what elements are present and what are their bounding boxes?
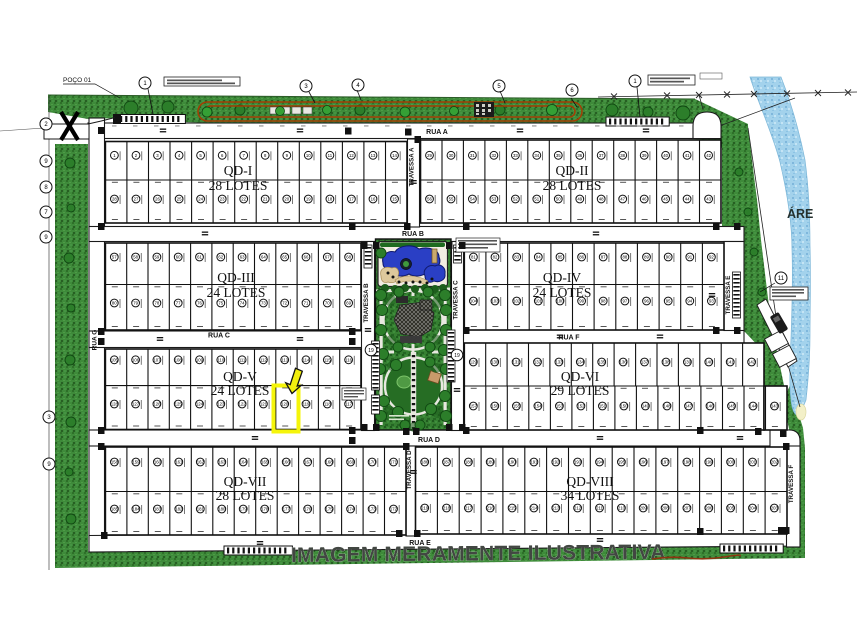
svg-text:18: 18 [328, 197, 333, 202]
svg-text:11: 11 [328, 153, 333, 158]
svg-text:174: 174 [347, 507, 355, 512]
svg-text:201: 201 [749, 460, 757, 465]
svg-text:208: 208 [662, 506, 670, 511]
svg-text:POÇO 01: POÇO 01 [63, 77, 92, 84]
svg-text:103: 103 [491, 299, 499, 304]
svg-text:12: 12 [349, 153, 354, 158]
svg-text:68: 68 [346, 255, 351, 260]
svg-text:130: 130 [491, 360, 499, 365]
svg-text:148: 148 [663, 404, 671, 409]
svg-text:188: 188 [465, 460, 473, 465]
svg-text:87: 87 [601, 255, 606, 260]
svg-text:207: 207 [683, 506, 691, 511]
svg-text:TRAVESSA E: TRAVESSA E [725, 276, 732, 315]
svg-text:42: 42 [706, 153, 711, 158]
svg-text:67: 67 [325, 255, 330, 260]
svg-text:114: 114 [303, 357, 310, 362]
svg-text:150: 150 [620, 404, 628, 409]
svg-text:51: 51 [534, 197, 539, 202]
svg-text:22: 22 [241, 197, 246, 202]
svg-text:QD-III: QD-III [217, 270, 255, 285]
svg-text:202: 202 [771, 460, 779, 465]
svg-text:168: 168 [326, 460, 334, 465]
svg-text:QD-II: QD-II [556, 163, 589, 178]
svg-text:33: 33 [513, 153, 518, 158]
svg-text:29: 29 [427, 153, 432, 158]
svg-text:17: 17 [349, 197, 354, 202]
svg-text:196: 196 [640, 460, 648, 465]
svg-text:107: 107 [153, 357, 161, 362]
svg-text:175: 175 [326, 507, 334, 512]
svg-text:115: 115 [324, 357, 331, 362]
svg-text:73: 73 [261, 301, 266, 306]
svg-text:24: 24 [198, 197, 203, 202]
svg-text:QD-V: QD-V [223, 369, 257, 384]
svg-text:26: 26 [155, 197, 160, 202]
svg-text:206: 206 [705, 506, 713, 511]
svg-text:34 LOTES: 34 LOTES [561, 488, 620, 503]
svg-text:47: 47 [620, 197, 625, 202]
svg-text:97: 97 [623, 299, 628, 304]
svg-text:177: 177 [283, 507, 291, 512]
svg-text:126: 126 [153, 402, 161, 407]
svg-text:80: 80 [112, 301, 117, 306]
svg-text:QD-I: QD-I [224, 163, 253, 178]
svg-text:65: 65 [282, 255, 287, 260]
svg-text:155: 155 [513, 404, 521, 409]
svg-text:131: 131 [513, 360, 521, 365]
svg-text:72: 72 [282, 301, 287, 306]
svg-text:29 LOTES: 29 LOTES [551, 383, 610, 398]
svg-text:194: 194 [596, 460, 604, 465]
svg-text:35: 35 [556, 153, 561, 158]
svg-text:86: 86 [579, 255, 584, 260]
svg-text:52: 52 [513, 197, 518, 202]
svg-text:89: 89 [644, 255, 649, 260]
svg-text:195: 195 [618, 460, 626, 465]
svg-text:TRAVESSA D: TRAVESSA D [406, 450, 413, 490]
svg-text:39: 39 [642, 153, 647, 158]
svg-text:204: 204 [749, 506, 757, 511]
svg-text:134: 134 [577, 360, 585, 365]
svg-text:43: 43 [706, 197, 711, 202]
svg-text:189: 189 [487, 460, 495, 465]
svg-text:187: 187 [443, 460, 451, 465]
svg-text:98: 98 [601, 299, 606, 304]
svg-text:156: 156 [491, 404, 499, 409]
svg-text:75: 75 [218, 301, 223, 306]
svg-text:83: 83 [514, 255, 519, 260]
svg-text:182: 182 [175, 507, 183, 512]
svg-text:172: 172 [390, 507, 398, 512]
svg-text:34: 34 [534, 153, 539, 158]
svg-text:140: 140 [705, 360, 713, 365]
svg-text:128: 128 [111, 402, 119, 407]
svg-text:21: 21 [263, 197, 268, 202]
svg-text:ÁRE: ÁRE [787, 206, 813, 221]
svg-text:211: 211 [596, 506, 603, 511]
svg-text:82: 82 [493, 255, 498, 260]
svg-text:44: 44 [685, 197, 690, 202]
svg-text:14: 14 [392, 153, 397, 158]
svg-text:122: 122 [239, 402, 247, 407]
svg-text:RUA D: RUA D [418, 437, 440, 444]
svg-text:192: 192 [552, 460, 560, 465]
svg-text:116: 116 [345, 357, 352, 362]
svg-text:183: 183 [154, 507, 162, 512]
svg-text:199: 199 [705, 460, 713, 465]
svg-text:213: 213 [552, 506, 560, 511]
svg-text:50: 50 [556, 197, 561, 202]
svg-text:93: 93 [709, 299, 714, 304]
svg-text:32: 32 [492, 153, 497, 158]
svg-text:205: 205 [727, 506, 735, 511]
svg-text:104: 104 [470, 299, 478, 304]
svg-text:57: 57 [112, 255, 117, 260]
svg-text:136: 136 [620, 360, 628, 365]
svg-text:28 LOTES: 28 LOTES [209, 178, 268, 193]
svg-text:212: 212 [574, 506, 582, 511]
svg-text:25: 25 [177, 197, 182, 202]
svg-text:QD-IV: QD-IV [543, 270, 581, 285]
svg-text:184: 184 [132, 507, 140, 512]
svg-text:36: 36 [577, 153, 582, 158]
svg-text:70: 70 [325, 301, 330, 306]
svg-text:19: 19 [454, 353, 460, 359]
svg-text:78: 78 [155, 301, 160, 306]
svg-text:179: 179 [240, 507, 248, 512]
svg-text:TRAVESSA F: TRAVESSA F [788, 465, 795, 504]
svg-text:190: 190 [509, 460, 517, 465]
svg-text:111: 111 [239, 357, 246, 362]
svg-text:24 LOTES: 24 LOTES [211, 383, 270, 398]
svg-text:19: 19 [306, 197, 311, 202]
svg-text:110: 110 [217, 357, 224, 362]
svg-text:46: 46 [642, 197, 647, 202]
svg-text:147: 147 [685, 404, 693, 409]
svg-text:137: 137 [641, 360, 649, 365]
svg-text:181: 181 [197, 507, 205, 512]
svg-text:QD-VIII: QD-VIII [566, 474, 614, 489]
svg-text:27: 27 [134, 197, 139, 202]
svg-text:118: 118 [324, 402, 331, 407]
svg-text:193: 193 [574, 460, 582, 465]
svg-text:138: 138 [662, 360, 670, 365]
svg-text:13: 13 [371, 153, 376, 158]
svg-text:53: 53 [492, 197, 497, 202]
svg-text:191: 191 [530, 460, 538, 465]
svg-text:41: 41 [685, 153, 690, 158]
svg-text:81: 81 [471, 255, 476, 260]
svg-text:186: 186 [421, 460, 429, 465]
svg-text:96: 96 [644, 299, 649, 304]
svg-text:63: 63 [240, 255, 245, 260]
svg-text:56: 56 [427, 197, 432, 202]
svg-text:127: 127 [132, 402, 140, 407]
svg-text:157: 157 [470, 404, 478, 409]
svg-text:10: 10 [306, 153, 311, 158]
svg-text:145: 145 [728, 404, 736, 409]
svg-text:59: 59 [155, 255, 160, 260]
svg-text:197: 197 [662, 460, 670, 465]
svg-text:15: 15 [392, 197, 397, 202]
svg-text:45: 45 [663, 197, 668, 202]
svg-text:161: 161 [175, 460, 183, 465]
svg-text:69: 69 [346, 301, 351, 306]
svg-text:171: 171 [390, 460, 398, 465]
svg-text:200: 200 [727, 460, 735, 465]
svg-text:166: 166 [283, 460, 291, 465]
svg-text:154: 154 [534, 404, 542, 409]
svg-text:84: 84 [536, 255, 541, 260]
svg-text:92: 92 [709, 255, 714, 260]
svg-text:143: 143 [771, 404, 779, 409]
svg-text:24 LOTES: 24 LOTES [533, 285, 592, 300]
svg-text:54: 54 [470, 197, 475, 202]
svg-text:102: 102 [513, 299, 521, 304]
svg-text:160: 160 [154, 460, 162, 465]
svg-text:IMAGEM MERAMENTE ILUSTRATIVA: IMAGEM MERAMENTE ILUSTRATIVA [291, 541, 666, 567]
svg-text:28 LOTES: 28 LOTES [543, 178, 602, 193]
svg-text:88: 88 [623, 255, 628, 260]
svg-text:64: 64 [261, 255, 266, 260]
svg-text:164: 164 [240, 460, 248, 465]
svg-text:66: 66 [304, 255, 309, 260]
svg-text:61: 61 [197, 255, 202, 260]
svg-text:133: 133 [555, 360, 563, 365]
svg-text:58: 58 [133, 255, 138, 260]
svg-text:23: 23 [220, 197, 225, 202]
svg-text:20: 20 [284, 197, 289, 202]
svg-text:216: 216 [487, 506, 495, 511]
svg-text:214: 214 [530, 506, 538, 511]
svg-text:90: 90 [666, 255, 671, 260]
svg-text:49: 49 [577, 197, 582, 202]
svg-text:151: 151 [599, 404, 607, 409]
svg-text:19: 19 [368, 348, 374, 354]
svg-text:48: 48 [599, 197, 604, 202]
svg-text:180: 180 [218, 507, 226, 512]
svg-text:170: 170 [369, 460, 377, 465]
svg-text:95: 95 [666, 299, 671, 304]
svg-text:TRAVESSA C: TRAVESSA C [453, 280, 460, 320]
svg-text:121: 121 [260, 402, 268, 407]
svg-text:163: 163 [218, 460, 226, 465]
svg-text:119: 119 [303, 402, 310, 407]
svg-text:24 LOTES: 24 LOTES [207, 285, 266, 300]
svg-text:135: 135 [598, 360, 606, 365]
svg-text:113: 113 [281, 357, 288, 362]
svg-text:117: 117 [345, 402, 352, 407]
svg-text:85: 85 [558, 255, 563, 260]
svg-text:219: 219 [421, 506, 429, 511]
svg-text:198: 198 [683, 460, 691, 465]
svg-text:55: 55 [449, 197, 454, 202]
svg-text:125: 125 [175, 402, 183, 407]
svg-text:217: 217 [465, 506, 473, 511]
svg-text:108: 108 [175, 357, 183, 362]
svg-text:152: 152 [577, 404, 585, 409]
svg-text:TRAVESSA B: TRAVESSA B [363, 283, 370, 323]
svg-text:112: 112 [260, 357, 267, 362]
svg-text:124: 124 [196, 402, 204, 407]
svg-text:77: 77 [176, 301, 181, 306]
svg-text:178: 178 [261, 507, 269, 512]
svg-text:146: 146 [706, 404, 714, 409]
svg-text:159: 159 [132, 460, 140, 465]
svg-text:209: 209 [640, 506, 648, 511]
svg-text:11: 11 [778, 276, 785, 282]
svg-text:RUA G: RUA G [92, 330, 99, 351]
svg-text:169: 169 [347, 460, 355, 465]
svg-text:185: 185 [111, 507, 119, 512]
svg-text:176: 176 [304, 507, 312, 512]
svg-text:120: 120 [281, 402, 289, 407]
svg-text:16: 16 [371, 197, 376, 202]
svg-text:71: 71 [304, 301, 309, 306]
svg-text:139: 139 [684, 360, 692, 365]
svg-text:210: 210 [618, 506, 626, 511]
svg-text:38: 38 [620, 153, 625, 158]
svg-text:162: 162 [197, 460, 205, 465]
svg-text:149: 149 [642, 404, 650, 409]
svg-text:60: 60 [176, 255, 181, 260]
svg-text:218: 218 [443, 506, 451, 511]
svg-text:109: 109 [196, 357, 204, 362]
svg-text:94: 94 [687, 299, 692, 304]
svg-text:123: 123 [217, 402, 225, 407]
svg-text:RUA A: RUA A [426, 129, 448, 136]
svg-text:91: 91 [687, 255, 692, 260]
svg-text:158: 158 [111, 460, 119, 465]
svg-text:79: 79 [133, 301, 138, 306]
svg-text:QD-VI: QD-VI [561, 369, 600, 384]
svg-text:153: 153 [556, 404, 564, 409]
svg-text:142: 142 [748, 360, 756, 365]
svg-text:129: 129 [470, 360, 478, 365]
svg-text:132: 132 [534, 360, 542, 365]
svg-text:141: 141 [727, 360, 735, 365]
svg-text:105: 105 [111, 357, 119, 362]
svg-text:RUA C: RUA C [208, 333, 230, 340]
svg-text:QD-VII: QD-VII [224, 474, 267, 489]
svg-text:37: 37 [599, 153, 604, 158]
svg-text:76: 76 [197, 301, 202, 306]
svg-text:215: 215 [509, 506, 517, 511]
svg-text:173: 173 [369, 507, 377, 512]
svg-text:RUA B: RUA B [402, 231, 424, 238]
svg-text:40: 40 [663, 153, 668, 158]
svg-text:31: 31 [470, 153, 475, 158]
svg-text:28 LOTES: 28 LOTES [216, 488, 275, 503]
svg-text:62: 62 [218, 255, 223, 260]
svg-text:167: 167 [304, 460, 312, 465]
svg-text:144: 144 [749, 404, 757, 409]
svg-text:106: 106 [132, 357, 140, 362]
svg-text:74: 74 [240, 301, 245, 306]
svg-text:30: 30 [449, 153, 454, 158]
svg-text:203: 203 [771, 506, 779, 511]
svg-text:28: 28 [112, 197, 117, 202]
svg-text:165: 165 [261, 460, 269, 465]
